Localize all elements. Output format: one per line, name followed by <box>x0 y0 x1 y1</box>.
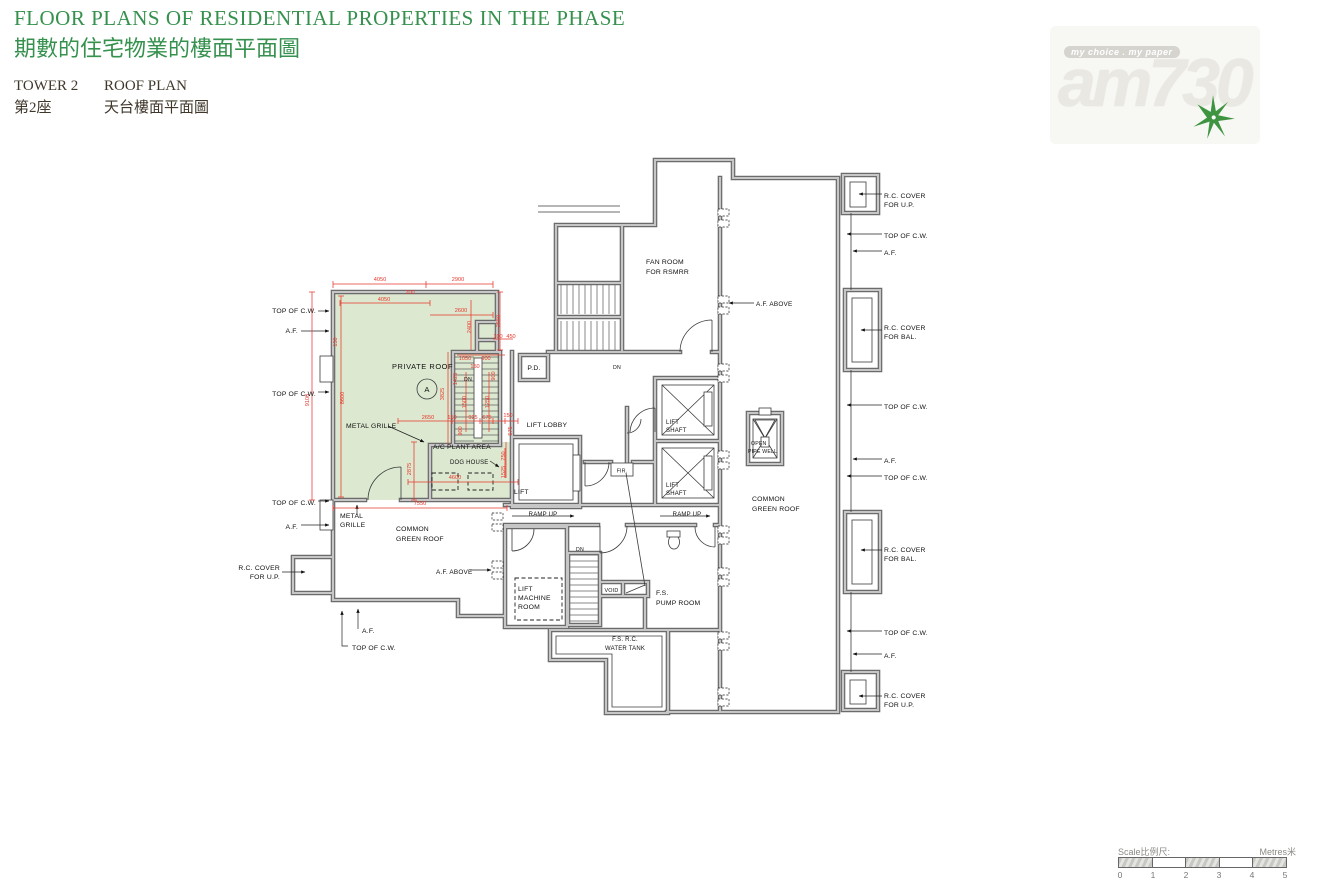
dim-value: 150 <box>503 413 512 419</box>
dim-value: 1250 <box>485 396 491 408</box>
dim-value: 750 <box>501 451 507 460</box>
dim-value: 900 <box>491 371 497 380</box>
dim-value: 900 <box>481 356 490 362</box>
af-label: A.F. <box>285 328 298 335</box>
ac-plant-area-label: A/C PLANT AREA <box>433 444 491 451</box>
dim-value: 4600 <box>449 475 461 481</box>
lift-machine-room-label: MACHINE <box>518 595 551 602</box>
common-green-roof-label: COMMON <box>396 526 429 533</box>
top-of-cw-label: TOP OF C.W. <box>352 645 396 652</box>
lift-shaft-label: LIFT <box>666 483 679 489</box>
rc-cover-label: R.C. COVER <box>884 193 926 200</box>
common-green-roof-label: COMMON <box>752 496 785 503</box>
top-of-cw-label: TOP OF C.W. <box>272 500 316 507</box>
dim-value: 150 <box>447 415 456 421</box>
lift-machine-room-label: LIFT <box>518 586 533 593</box>
dn-label: DN <box>576 547 584 553</box>
dim-value: 1500 <box>462 396 468 408</box>
dim-value: 1050 <box>459 356 471 362</box>
fan-room-label: FOR RSMRR <box>646 269 689 276</box>
scale-bar: Scale比例尺: Metres米 0 1 2 3 4 5 <box>1118 845 1308 881</box>
scale-label: Scale比例尺: <box>1118 847 1170 857</box>
af-label: A.F. <box>884 653 897 660</box>
dim-value: 575 <box>508 426 514 435</box>
top-of-cw-label: TOP OF C.W. <box>884 404 928 411</box>
lift-machine-room-label: ROOM <box>518 604 540 611</box>
scale-ticks: 0 1 2 3 4 5 <box>1118 870 1287 880</box>
fan-room-label: FAN ROOM <box>646 259 684 266</box>
scale-tick: 5 <box>1283 870 1288 880</box>
top-of-cw-label: TOP OF C.W. <box>884 233 928 240</box>
dn-label: DN <box>464 377 472 383</box>
dim-value: 675 <box>482 415 491 421</box>
common-green-roof-label: GREEN ROOF <box>396 536 444 543</box>
dim-value: 150 <box>333 337 339 346</box>
for-up-label: FOR U.P. <box>250 574 280 581</box>
void-label: VOID <box>605 588 619 594</box>
open-pipe-well-label: OPEN <box>751 441 767 447</box>
af-label: A.F. <box>884 458 897 465</box>
dim-value: 2875 <box>407 463 413 475</box>
rc-cover-label: R.C. COVER <box>884 547 926 554</box>
fs-water-tank-label: WATER TANK <box>605 646 645 652</box>
dim-value: 4050 <box>374 277 386 283</box>
rc-cover-label: R.C. COVER <box>884 325 926 332</box>
lift-label: LIFT <box>514 489 529 496</box>
dim-value: 150 <box>470 364 479 370</box>
rc-cover-label: R.C. COVER <box>238 565 280 572</box>
top-of-cw-label: TOP OF C.W. <box>884 630 928 637</box>
af-label: A.F. <box>362 628 375 635</box>
af-above-label: A.F. ABOVE <box>436 569 472 576</box>
scale-tick: 1 <box>1151 870 1156 880</box>
unit-mark: A <box>424 385 430 394</box>
scale-tick: 4 <box>1250 870 1255 880</box>
open-pipe-well-label: PIPE WELL <box>748 449 777 455</box>
top-of-cw-label: TOP OF C.W. <box>884 475 928 482</box>
private-roof-label: PRIVATE ROOF <box>392 362 453 371</box>
scale-bar-segments <box>1118 857 1287 868</box>
lift-shaft-label: SHAFT <box>666 491 687 497</box>
top-of-cw-label: TOP OF C.W. <box>272 391 316 398</box>
dim-value: 2550 <box>496 315 502 327</box>
af-label: A.F. <box>884 250 897 257</box>
dn-label: DN <box>613 365 621 371</box>
dim-value: 3825 <box>440 388 446 400</box>
for-up-label: FOR U.P. <box>884 202 914 209</box>
grille-label: GRILLE <box>340 522 366 529</box>
ramp-up-label: RAMP UP <box>673 512 702 518</box>
pd-label: P.D. <box>527 365 540 372</box>
af-label: A.F. <box>285 524 298 531</box>
dim-value: 450 <box>506 334 515 340</box>
dim-value: 925 <box>468 415 477 421</box>
scale-tick: 3 <box>1217 870 1222 880</box>
dim-value: 2400 <box>467 321 473 333</box>
dim-value: 2900 <box>452 277 464 283</box>
dim-value: 7550 <box>414 501 426 507</box>
dog-house-label: DOG HOUSE <box>450 460 488 466</box>
fs-pump-room-label: PUMP ROOM <box>656 600 700 607</box>
for-bal-label: FOR BAL. <box>884 334 917 341</box>
lift-shaft-label: SHAFT <box>666 428 687 434</box>
common-green-roof-label: GREEN ROOF <box>752 506 800 513</box>
for-up-label: FOR U.P. <box>884 702 914 709</box>
metal-grille-label: METAL GRILLE <box>346 423 397 430</box>
rc-cover-label: R.C. COVER <box>884 693 926 700</box>
fs-pump-room-label: F.S. <box>656 590 669 597</box>
metal-label: METAL <box>340 513 363 520</box>
lift-shaft-label: LIFT <box>666 420 679 426</box>
page: FLOOR PLANS OF RESIDENTIAL PROPERTIES IN… <box>0 0 1323 884</box>
dim-value: 900 <box>458 426 464 435</box>
dim-value: 2600 <box>455 308 467 314</box>
top-of-cw-label: TOP OF C.W. <box>272 308 316 315</box>
dim-value: 8600 <box>340 392 346 404</box>
dim-value: 2650 <box>422 415 434 421</box>
dim-value: 100 <box>493 334 502 340</box>
ramp-up-label: RAMP UP <box>529 512 558 518</box>
fir-label: FIR. <box>617 469 628 475</box>
lift-lobby-label: LIFT LOBBY <box>527 422 568 429</box>
af-above-label: A.F. ABOVE <box>756 301 792 308</box>
for-bal-label: FOR BAL. <box>884 556 917 563</box>
dim-value: 1425 <box>453 373 459 385</box>
scale-tick: 2 <box>1184 870 1189 880</box>
dim-value: 4050 <box>378 297 390 303</box>
dim-value: 200 <box>405 290 414 296</box>
scale-tick: 0 <box>1118 870 1123 880</box>
dim-value: 1525 <box>501 466 507 478</box>
fs-water-tank-label: F.S. R.C. <box>612 637 638 643</box>
floor-plan-drawing: 4050 2900 4050 2600 2400 2550 9100 8600 … <box>0 0 1323 884</box>
